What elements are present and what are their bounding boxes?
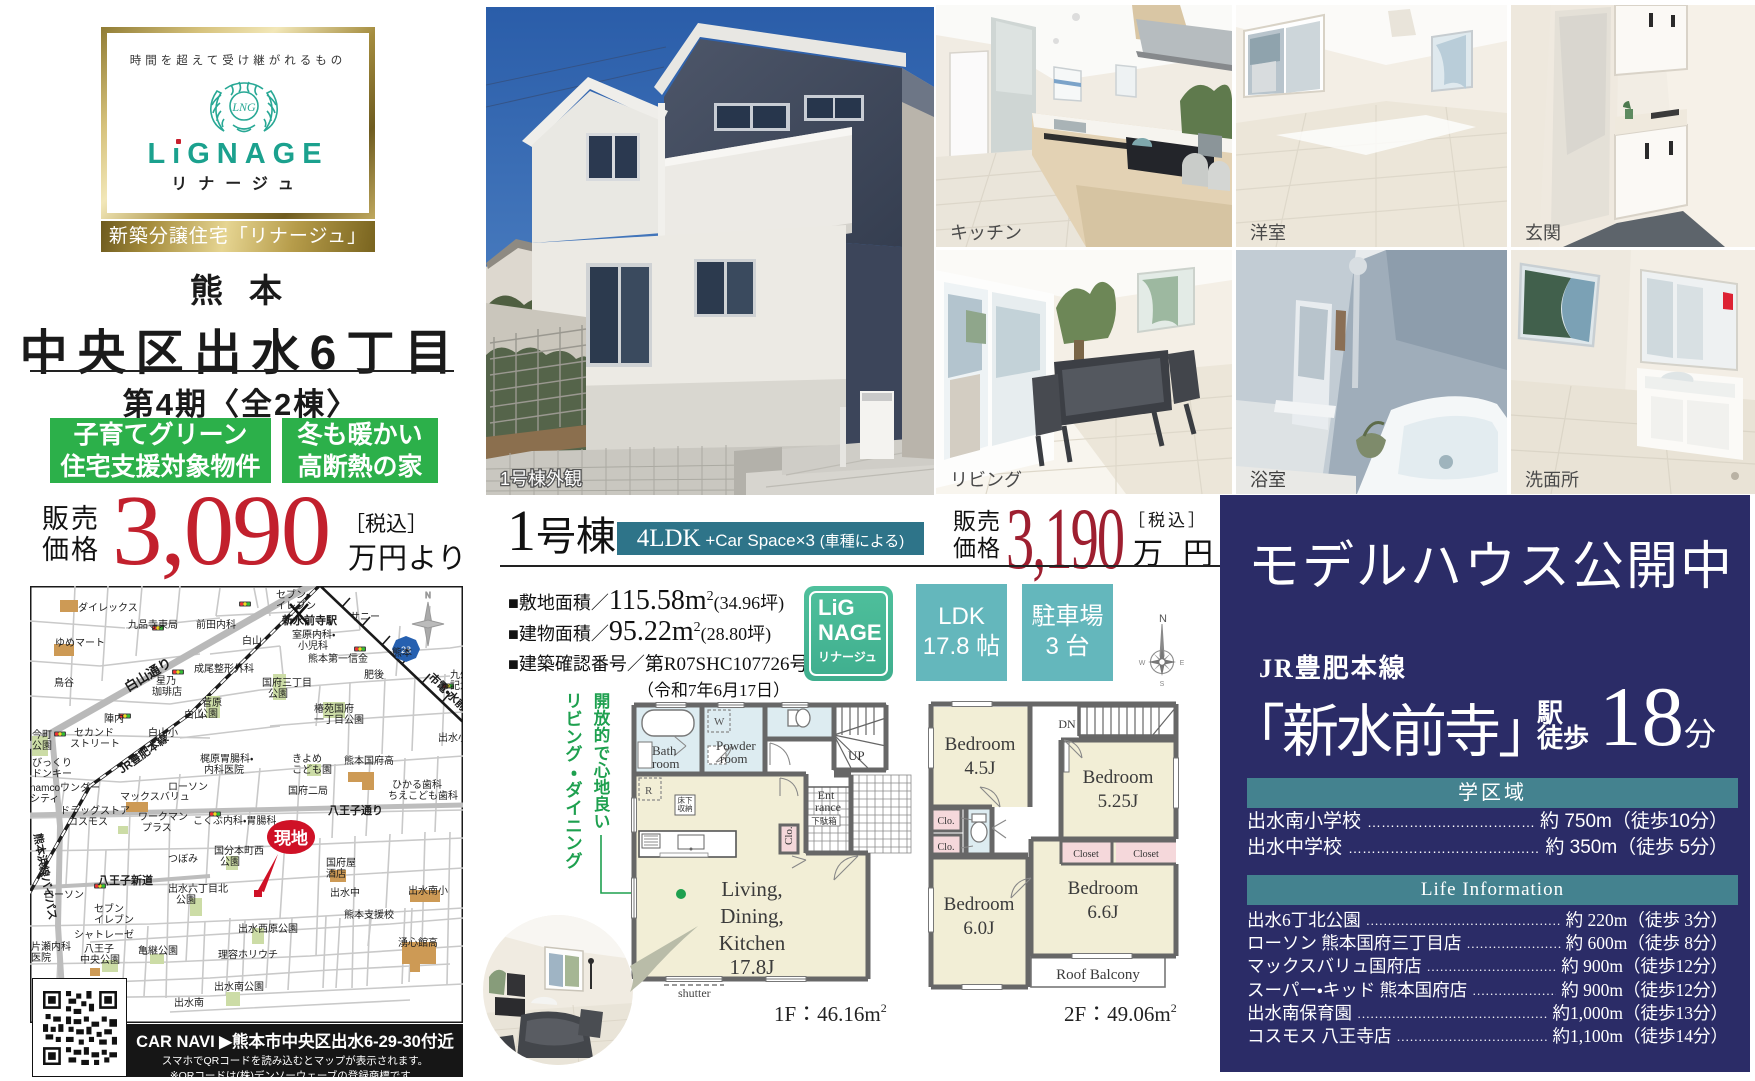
svg-text:きよめ: きよめ [292,753,322,765]
svg-text:今町: 今町 [32,728,52,741]
svg-text:ひかる歯科: ひかる歯科 [392,778,442,791]
svg-text:rance: rance [815,800,841,814]
svg-text:room: room [652,756,679,771]
svg-text:プラス: プラス [142,822,172,834]
svg-text:亀継公園: 亀継公園 [138,944,178,957]
svg-text:菅原: 菅原 [202,697,222,709]
svg-text:ドラッグストア: ドラッグストア [60,804,130,817]
svg-text:熊本国府高: 熊本国府高 [344,754,394,767]
svg-text:ダイレックス: ダイレックス [78,601,138,614]
svg-text:椿苑国府: 椿苑国府 [314,702,354,715]
svg-text:湧心館高: 湧心館高 [398,936,438,949]
svg-text:出水六丁目北: 出水六丁目北 [168,882,228,895]
svg-text:Bedroom: Bedroom [944,894,1015,915]
svg-text:熊本第一信金: 熊本第一信金 [308,652,368,665]
svg-text:熊本支援校: 熊本支援校 [344,908,394,921]
svg-text:小児科: 小児科 [298,639,328,652]
svg-text:珈琲店: 珈琲店 [152,686,182,698]
svg-text:白山: 白山 [242,634,262,647]
svg-text:サニー: サニー [350,611,380,623]
svg-text:E: E [1180,660,1185,667]
svg-text:白山: 白山 [184,708,204,721]
svg-text:セカンド: セカンド [74,727,114,739]
svg-text:Living,: Living, [721,877,782,901]
svg-text:DN: DN [1058,717,1076,731]
svg-text:5.25J: 5.25J [1098,791,1139,812]
svg-text:N: N [425,591,431,600]
svg-text:R: R [645,785,653,797]
svg-text:namcoワンダー: namcoワンダー [30,781,100,794]
svg-text:国府二局: 国府二局 [288,785,328,797]
svg-text:下駄箱: 下駄箱 [811,816,837,826]
svg-text:新水前寺駅: 新水前寺駅 [281,613,337,627]
svg-text:収納: 収納 [678,803,693,813]
svg-text:内科医院: 内科医院 [204,763,244,776]
svg-text:鳥谷: 鳥谷 [54,676,74,689]
svg-text:公園: 公園 [176,894,196,906]
svg-text:洋室: 洋室 [1250,223,1286,243]
svg-text:梶原胃腸科・: 梶原胃腸科・ [200,752,253,765]
svg-text:Bedroom: Bedroom [945,734,1016,755]
svg-text:Bedroom: Bedroom [1068,878,1139,899]
svg-text:シャトレーゼ: シャトレーゼ [74,929,134,941]
svg-text:公園: 公園 [32,740,52,752]
svg-text:室原内科・: 室原内科・ [292,628,335,641]
svg-text:国分本町西: 国分本町西 [214,844,264,857]
svg-text:理容ホリウチ: 理容ホリウチ [218,948,278,961]
svg-text:マックスバリュ: マックスバリュ [120,791,190,803]
svg-text:room: room [720,751,747,766]
svg-text:イレブン: イレブン [94,913,134,926]
svg-text:Clo.: Clo. [938,842,955,853]
svg-text:こくぶ内科・胃腸科: こくぶ内科・胃腸科 [193,814,276,827]
svg-text:こども園: こども園 [292,764,332,776]
svg-text:洗面所: 洗面所 [1525,470,1579,490]
svg-text:肥後: 肥後 [364,668,384,681]
svg-text:N: N [1159,613,1167,625]
svg-text:セブン: セブン [94,902,124,915]
svg-text:八王子: 八王子 [84,943,114,955]
svg-text:4.5J: 4.5J [964,758,995,779]
svg-text:Kitchen: Kitchen [719,931,786,955]
svg-text:イレブン: イレブン [276,599,316,612]
svg-text:中央公園: 中央公園 [80,953,120,966]
svg-text:Clo.: Clo. [938,816,955,827]
svg-text:キッチン: キッチン [950,223,1022,243]
svg-text:ドンキー: ドンキー [32,769,72,780]
svg-text:出水南: 出水南 [174,996,204,1009]
svg-text:一丁目公園: 一丁目公園 [314,714,364,726]
svg-text:陣内: 陣内 [104,712,124,725]
svg-text:浴室: 浴室 [1250,470,1286,490]
svg-text:セブン・: セブン・ [276,588,309,601]
svg-text:酒店: 酒店 [326,868,346,880]
svg-text:Roof Balcony: Roof Balcony [1056,967,1140,983]
svg-text:玄関: 玄関 [1525,223,1561,243]
svg-text:出水小: 出水小 [438,732,463,744]
svg-text:UP: UP [848,748,865,763]
svg-text:Bedroom: Bedroom [1083,767,1154,788]
svg-text:出水西原公園: 出水西原公園 [238,923,298,935]
svg-text:ちえこども歯科: ちえこども歯科 [388,789,458,802]
svg-text:八王子新道: 八王子新道 [98,873,153,887]
svg-text:医院: 医院 [31,952,51,964]
svg-text:Clo.: Clo. [783,826,795,845]
svg-text:シティ: シティ [30,794,59,805]
svg-text:Closet: Closet [1133,849,1159,860]
svg-text:熊本: 熊本 [392,646,412,659]
svg-text:W: W [1139,660,1146,667]
svg-text:コスモス: コスモス [68,817,108,828]
svg-text:W: W [714,716,725,728]
svg-text:ワークマン: ワークマン [138,811,188,823]
svg-text:S: S [1160,681,1165,688]
svg-text:出水南小: 出水南小 [408,884,448,897]
svg-text:前田内科: 前田内科 [196,618,236,631]
svg-text:リビング: リビング [950,470,1022,490]
svg-text:ストリート: ストリート [70,739,120,750]
svg-text:ゆめマート: ゆめマート [55,637,105,649]
svg-text:つぼみ: つぼみ [168,853,198,865]
svg-text:八王子通り: 八王子通り [328,803,383,817]
svg-text:出水南公園: 出水南公園 [214,980,264,993]
svg-text:6.0J: 6.0J [963,918,994,939]
svg-text:公園: 公園 [268,688,288,700]
svg-text:国府三丁目: 国府三丁目 [262,677,312,689]
svg-text:出水中: 出水中 [330,886,360,899]
svg-text:6.6J: 6.6J [1087,902,1118,923]
svg-text:Dining,: Dining, [720,904,784,928]
svg-text:片瀬内科: 片瀬内科 [31,940,71,953]
svg-text:びっくり: びっくり [32,757,72,769]
svg-text:現地: 現地 [274,828,308,848]
svg-text:1号棟外観: 1号棟外観 [500,469,582,489]
svg-text:公園: 公園 [220,856,240,868]
svg-text:LNG: LNG [231,100,256,114]
svg-text:17.8J: 17.8J [730,955,775,979]
svg-text:成尾整形外科: 成尾整形外科 [194,662,254,675]
svg-text:国府屋: 国府屋 [326,857,356,869]
svg-text:九品寺東局: 九品寺東局 [128,618,178,631]
svg-text:Closet: Closet [1073,849,1099,860]
svg-text:九州: 九州 [450,669,463,681]
